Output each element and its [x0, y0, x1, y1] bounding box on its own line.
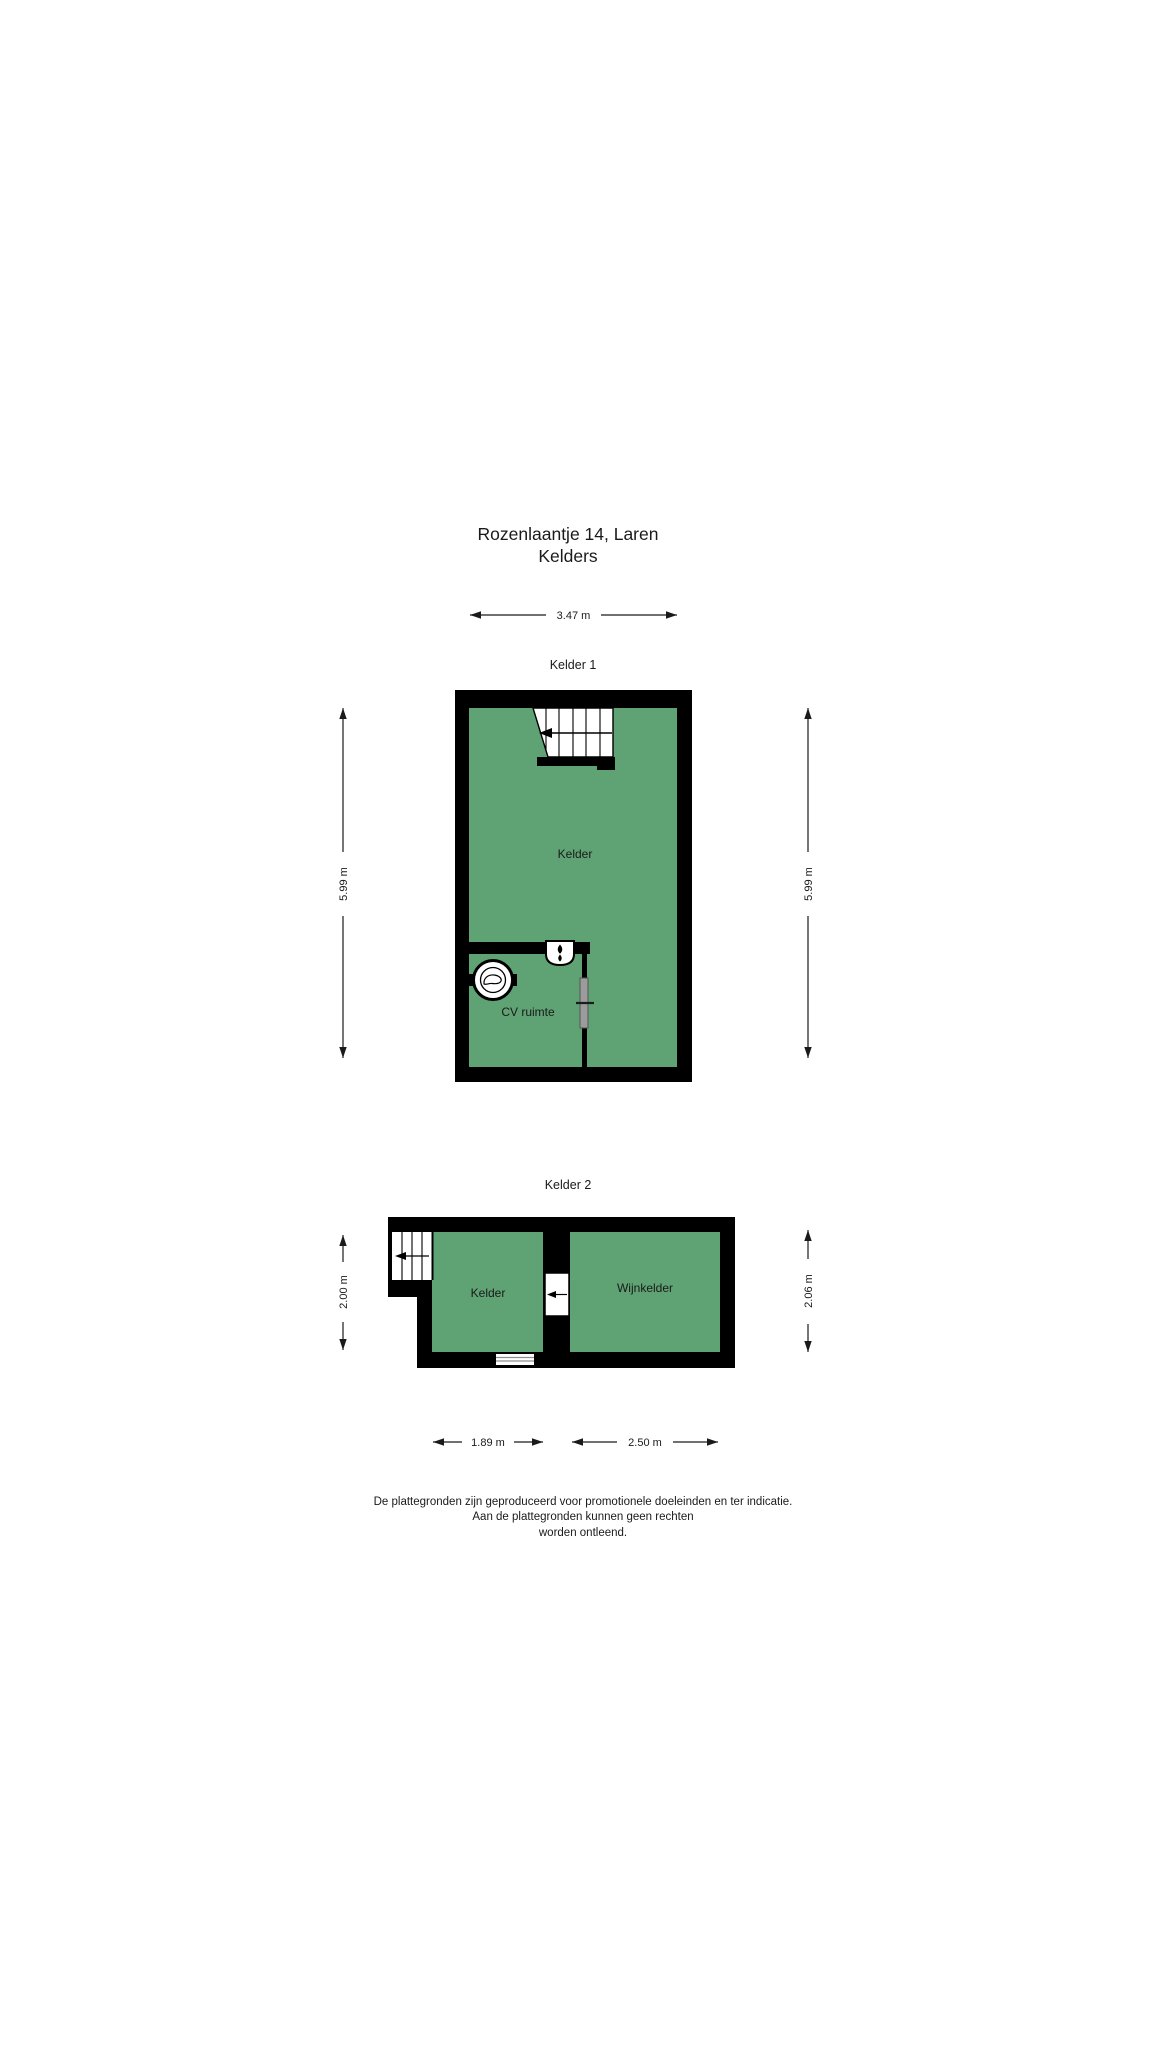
floor-label-kelder-1: Kelder 1	[550, 658, 597, 672]
room-label-cv-ruimte: CV ruimte	[501, 1005, 555, 1019]
kelder2-door	[545, 1273, 569, 1316]
dimension-right-height: 5.99 m	[803, 708, 815, 1058]
room-label-kelder2-kelder: Kelder	[471, 1286, 506, 1300]
disclaimer-line-3: worden ontleend.	[0, 1526, 1152, 1541]
sink-icon	[546, 941, 574, 965]
page-title: Rozenlaantje 14, Laren Kelders	[0, 523, 1136, 567]
dimension-bottom-left-label: 1.89 m	[471, 1437, 505, 1449]
kelder1-floorplan: 3.47 m Kelder 1 5.99 m 5.99 m	[240, 595, 920, 1090]
kelder2-stairs	[392, 1232, 433, 1280]
page-title-address: Rozenlaantje 14, Laren	[0, 523, 1136, 545]
disclaimer: De plattegronden zijn geproduceerd voor …	[0, 1495, 1152, 1541]
dimension-right-label: 5.99 m	[803, 867, 815, 901]
dimension-top-label: 3.47 m	[557, 610, 591, 622]
dimension-bottom-right-label: 2.50 m	[628, 1437, 662, 1449]
dimension-right-height-2: 2.06 m	[803, 1230, 815, 1352]
floor-label-kelder-2: Kelder 2	[545, 1178, 592, 1192]
disclaimer-line-1: De plattegronden zijn geproduceerd voor …	[0, 1495, 1152, 1510]
page-title-floor: Kelders	[0, 545, 1136, 567]
dimension-left-label-2: 2.00 m	[338, 1275, 350, 1309]
kelder2-window-icon	[496, 1354, 534, 1365]
room-label-kelder: Kelder	[558, 847, 593, 861]
disclaimer-line-2: Aan de plattegronden kunnen geen rechten	[0, 1510, 1152, 1525]
kelder1-understairs-wall-notch	[597, 757, 615, 770]
dimension-bottom-left-width: 1.89 m	[433, 1437, 543, 1449]
room-label-wijnkelder: Wijnkelder	[617, 1281, 673, 1295]
dimension-left-height-2: 2.00 m	[338, 1235, 350, 1350]
dimension-bottom-right-width: 2.50 m	[572, 1437, 718, 1449]
kelder2-floorplan: Kelder 2 Kelder Wijnkelder	[240, 1150, 920, 1460]
dimension-right-label-2: 2.06 m	[803, 1274, 815, 1308]
dimension-left-label: 5.99 m	[338, 867, 350, 901]
dimension-top-width: 3.47 m	[470, 610, 677, 622]
dimension-left-height: 5.99 m	[338, 708, 350, 1058]
